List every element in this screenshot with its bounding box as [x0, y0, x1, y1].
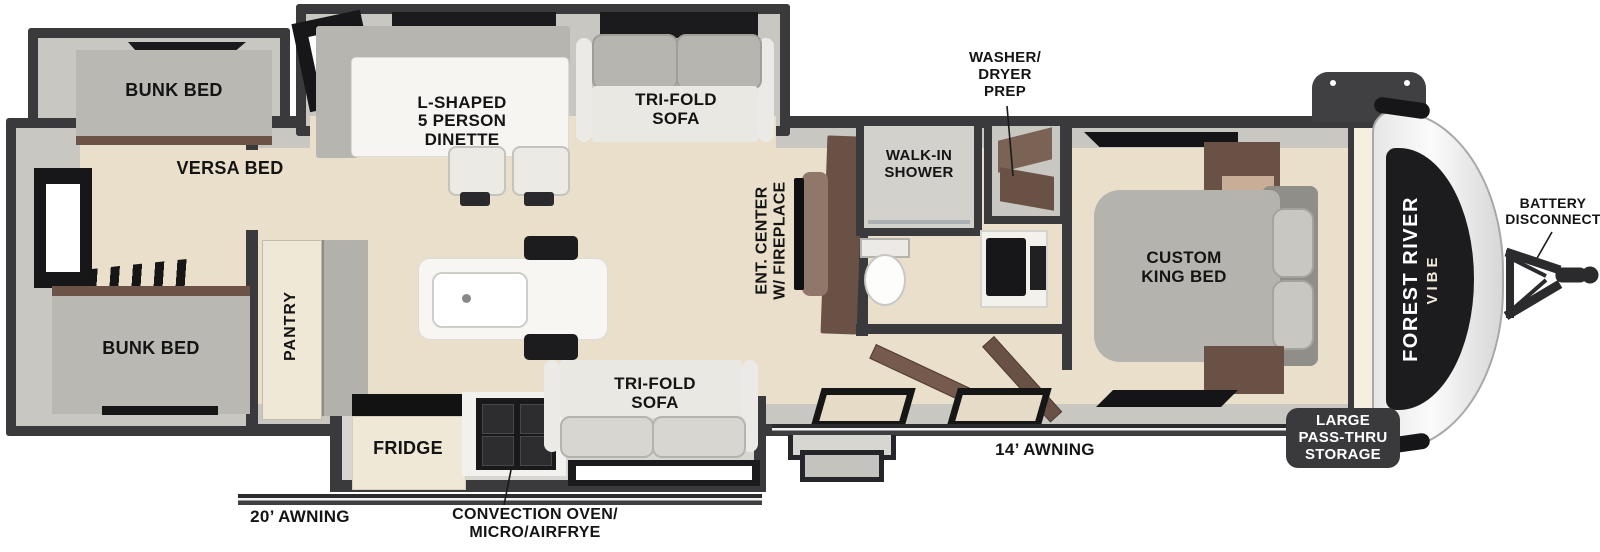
bunk-bed-top-label: BUNK BED [76, 80, 272, 100]
sofa-top-label: TRI-FOLD SOFA [598, 90, 754, 128]
pass-thru-storage-label: LARGE PASS-THRU STORAGE [1288, 413, 1398, 463]
awning-main-label: 14’ AWNING [965, 440, 1125, 459]
bunk-bed-top-wood-trim [76, 136, 272, 145]
toilet-bowl-icon [864, 254, 906, 306]
pillow-1-icon [1272, 208, 1314, 278]
pillow-2-icon [1272, 280, 1314, 350]
dinette-chair-1-base [460, 192, 490, 206]
battery-pointer-line [1536, 232, 1552, 260]
vanity-sink-icon [986, 238, 1026, 296]
floor-vent-1 [810, 388, 915, 428]
brand-forest-river: FOREST RIVER [1399, 154, 1423, 404]
island-stool-top [524, 236, 578, 260]
washer-dryer-prep-label: WASHER/ DRYER PREP [952, 50, 1058, 100]
convection-label: CONVECTION OVEN/ MICRO/AIRFRYE [415, 506, 655, 542]
versa-bed-label: VERSA BED [140, 158, 320, 178]
tv-icon [794, 178, 804, 290]
burner-1 [482, 404, 514, 434]
awning-rear-label: 20’ AWNING [215, 507, 385, 526]
awning-rear-bar [238, 494, 762, 505]
island-faucet-icon [462, 294, 471, 303]
brand-vibe: VIBE [1423, 154, 1443, 404]
sofa-top-back-cushion-2 [676, 34, 762, 90]
fireplace-icon [802, 172, 828, 296]
pantry-label: PANTRY [282, 266, 300, 386]
vanity-side-cabinet [1030, 246, 1046, 290]
ent-center-label: ENT. CENTER W/ FIREPLACE [753, 156, 788, 326]
fridge-top [352, 394, 464, 416]
floorplan-canvas: BUNK BED VERSA BED BUNK BED PANTRY L-SHA… [0, 0, 1600, 552]
walk-in-shower-label: WALK-IN SHOWER [864, 148, 974, 182]
burner-3 [482, 436, 514, 466]
window-pane [576, 466, 752, 480]
hitch-icon [1506, 250, 1598, 318]
dinette-chair-1 [448, 146, 506, 196]
bunk-bed-bottom-label: BUNK BED [52, 338, 250, 358]
sofa-top-back-cushion-1 [592, 34, 678, 90]
rear-window-icon [34, 168, 92, 288]
dinette-chair-2 [512, 146, 570, 196]
fridge-label: FRIDGE [352, 438, 464, 458]
roof-box-rivet-1 [1330, 80, 1336, 86]
sofa-bottom-back-cushion-1 [560, 416, 654, 458]
shower-glass-icon [868, 220, 970, 224]
tall-cabinet [322, 240, 368, 416]
bedroom-window-bottom-icon [1096, 390, 1238, 407]
custom-king-bed-label: CUSTOM KING BED [1100, 248, 1268, 286]
island-stool-bottom [524, 334, 578, 360]
brand-logo: FOREST RIVER VIBE [1399, 154, 1453, 404]
roof-box-rivet-2 [1404, 80, 1410, 86]
battery-disconnect-label: BATTERY DISCONNECT [1502, 196, 1600, 227]
bedroom-nightstand [1204, 346, 1284, 394]
bunk-slide-window-mark [128, 42, 246, 50]
sofa-bottom-label: TRI-FOLD SOFA [578, 374, 732, 412]
sofa-bottom-back-cushion-2 [652, 416, 746, 458]
dinette-label: L-SHAPED 5 PERSON DINETTE [372, 94, 552, 149]
entry-step-2 [800, 450, 884, 482]
island-sink-icon [432, 272, 528, 328]
bedroom-wall [1062, 118, 1072, 370]
floor-vent-2 [946, 388, 1051, 428]
kitchen-bottom-window-icon [568, 460, 760, 486]
bath-bottom-wall [856, 324, 1068, 334]
sofa-top-armrest-left [576, 38, 592, 142]
sofa-bottom-armrest-left [544, 360, 560, 452]
bunk-bed-bottom-wood-trim [52, 286, 250, 296]
awning-main-bar [772, 424, 1320, 435]
window-pane [46, 184, 80, 272]
dinette-chair-2-base [524, 192, 554, 206]
rear-door-threshold [102, 406, 218, 415]
